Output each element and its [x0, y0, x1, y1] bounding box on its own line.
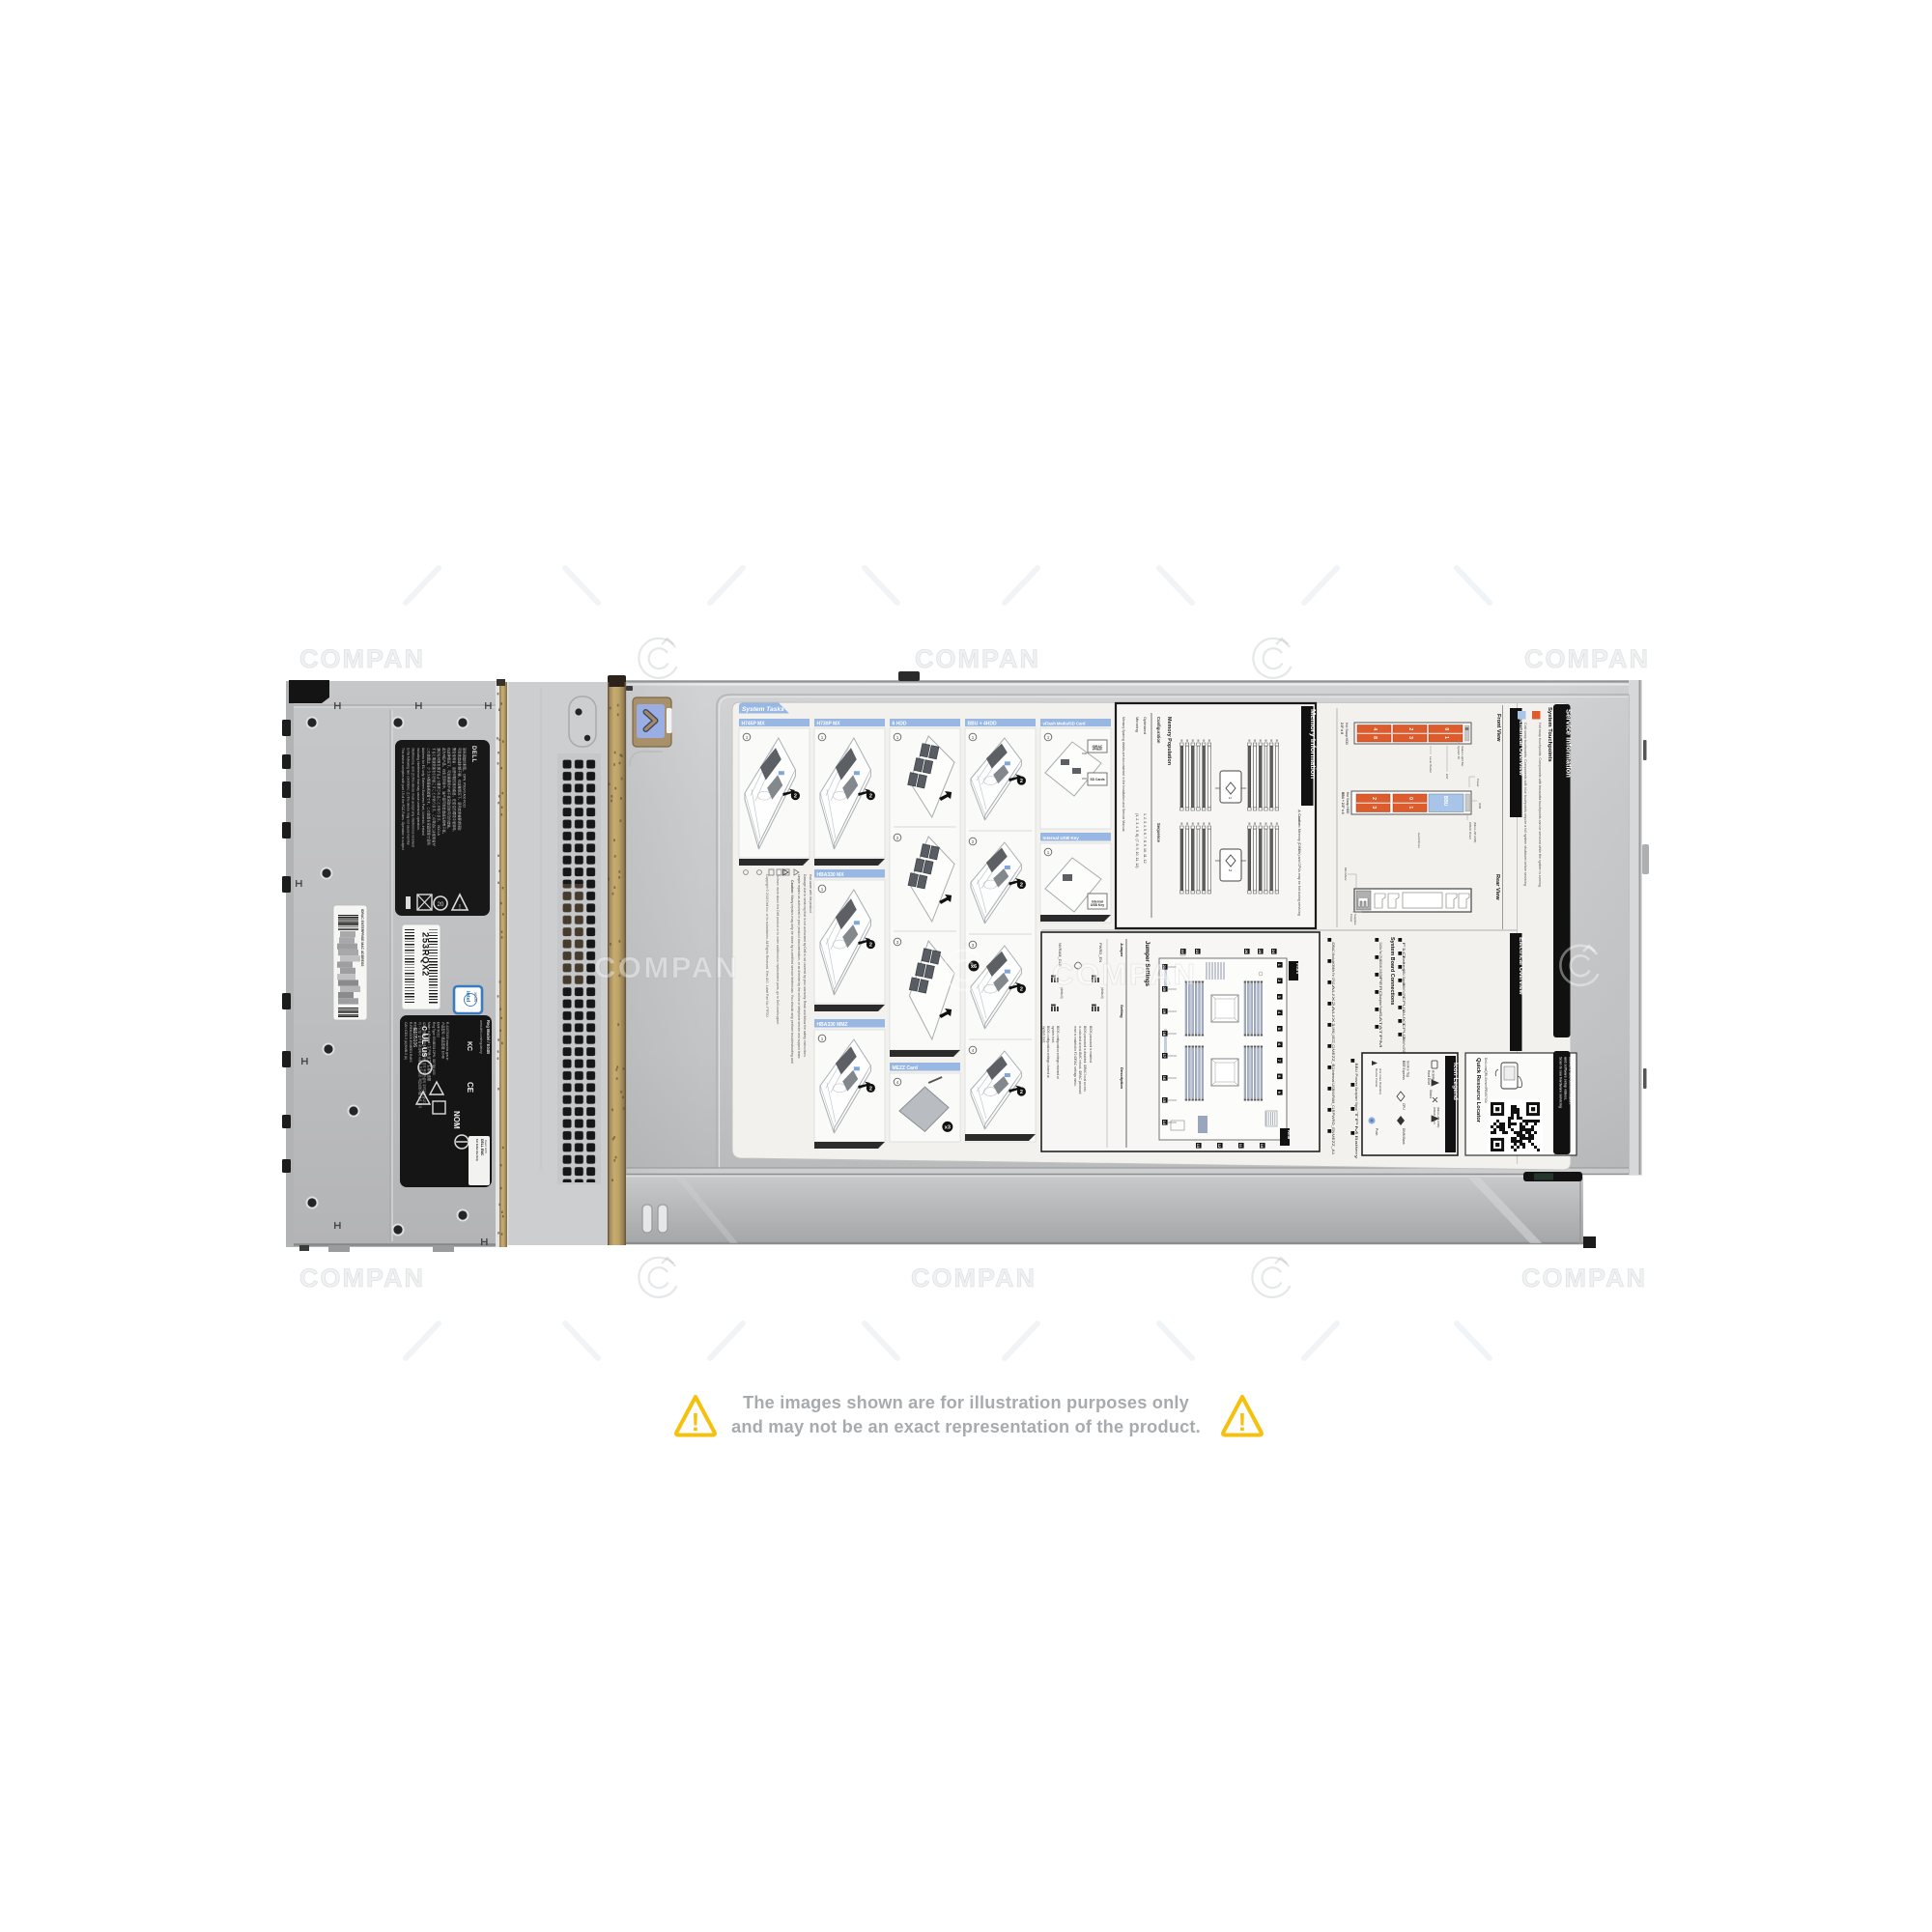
svg-text:在这种情况下，可能需要用户对干扰采取切实可行的措施。: 在这种情况下，可能需要用户对干扰采取切实可行的措施。: [447, 748, 452, 831]
svg-text:Battery: Battery: [1354, 1136, 1358, 1160]
svg-text:1: 1: [1047, 850, 1050, 855]
svg-text:!: !: [459, 904, 461, 911]
svg-text:2: 2: [1020, 779, 1023, 784]
svg-text:2: 2: [1407, 727, 1413, 730]
svg-text:⚠ Caution: Memory (DIMMs) and: ⚠ Caution: Memory (DIMMs) and CPUs may b…: [1297, 810, 1301, 916]
svg-text:Damage due to servicing that i: Damage due to servicing that is not auth…: [803, 874, 807, 1057]
svg-text:CPU: CPU: [1402, 1103, 1406, 1110]
svg-text:BIOS password is disabled. iDR: BIOS password is disabled. iDRAC local a…: [1083, 1026, 1087, 1092]
svg-text:Front: Front: [1295, 963, 1300, 975]
svg-text:DIMM Bank: DIMM Bank: [1402, 1128, 1406, 1145]
svg-text:TPM: TPM: [1354, 1112, 1358, 1136]
svg-text:(Micro-AB USB): (Micro-AB USB): [1436, 1107, 1440, 1127]
svg-text:This device complies with part: This device complies with part 15 of the…: [401, 748, 405, 850]
svg-text:SD Cards: SD Cards: [1090, 778, 1104, 781]
svg-text:Sequence: Sequence: [1156, 823, 1161, 842]
svg-text:interference, and (2) this dev: interference, and (2) this device must a…: [412, 748, 415, 847]
svg-text:reset is enabled in F2 iDRAC s: reset is enabled in F2 iDRAC settings me…: [1073, 1026, 1077, 1087]
svg-text:Backplane Signal: Backplane Signal: [1354, 1088, 1358, 1111]
svg-text:Quick Resource Locator: Quick Resource Locator: [1475, 1058, 1481, 1123]
svg-text:0: 0: [1443, 727, 1449, 730]
svg-text:intel: intel: [465, 991, 470, 1003]
svg-text:2: 2: [1020, 1090, 1023, 1095]
svg-text:Supplies: Supplies: [1353, 914, 1357, 925]
svg-text:COMPAN: COMPAN: [594, 951, 739, 984]
svg-text:(Micro-AB USB): (Micro-AB USB): [1473, 822, 1477, 842]
svg-text:14: 14: [1162, 1121, 1167, 1125]
svg-text:2: 2: [794, 794, 797, 800]
svg-text:3: 3: [1371, 806, 1377, 809]
svg-text:AUX1: AUX1: [1331, 1007, 1335, 1028]
svg-text:1: 1: [821, 887, 824, 892]
svg-text:BIOS configuration settings cl: BIOS configuration settings cleared at: [1046, 1026, 1050, 1078]
svg-text:USB Key: USB Key: [1091, 903, 1104, 907]
svg-text:適切な対策を講ずるよう要求されることがあります。 VCCI-: 適切な対策を講ずるよう要求されることがあります。 VCCI-A: [437, 748, 441, 837]
svg-text:Internal USB: Internal USB: [1331, 1070, 1335, 1092]
svg-text:EMF FCC2: EMF FCC2: [437, 1022, 440, 1037]
svg-text:c UL us: c UL us: [420, 1026, 430, 1057]
svg-text:17: 17: [1162, 1054, 1167, 1059]
svg-text:iDRAC Direct: iDRAC Direct: [1468, 822, 1472, 839]
svg-text:Internal USB Key: Internal USB Key: [1043, 836, 1080, 840]
svg-text:EST: EST: [1445, 774, 1449, 780]
svg-text:Jumper: Jumper: [1120, 943, 1124, 957]
svg-text:!: !: [1238, 1407, 1247, 1436]
svg-text:System ID: System ID: [1457, 746, 1461, 760]
svg-text:可能會造成射頻干擾，在這種情況下，使用者會被要求採取: 可能會造成射頻干擾，在這種情況下，使用者會被要求採取: [457, 748, 462, 831]
svg-text:CE: CE: [466, 1082, 474, 1094]
svg-text:6 HDD: 6 HDD: [893, 721, 907, 726]
svg-text:Address for EU only: Raheen Bu: Address for EU only: Raheen Business Par…: [421, 748, 425, 836]
svg-text:Icon Legend: Icon Legend: [1452, 1063, 1459, 1100]
svg-text:すると電波妨害を引き起こすことがあります。この場合には使用者: すると電波妨害を引き起こすことがあります。この場合には使用者が: [432, 748, 437, 847]
svg-text:iDRAC Module: iDRAC Module: [1331, 943, 1335, 964]
svg-text:8: 8: [1372, 736, 1378, 739]
svg-text:iDRAC Direct: iDRAC Direct: [1433, 1107, 1436, 1124]
svg-text:Dell.com/QRL/Server/PEMX740c: Dell.com/QRL/Server/PEMX740c: [1484, 1058, 1488, 1103]
svg-text:4: 4: [896, 1080, 899, 1085]
svg-text:AUX2: AUX2: [1331, 985, 1335, 1007]
svg-text:2: 2: [972, 839, 975, 844]
svg-text:USB: USB: [1478, 803, 1482, 809]
svg-text:Backplane Power: Backplane Power: [1378, 995, 1382, 1014]
svg-text:MEZZ_B1: MEZZ_B1: [1331, 1049, 1335, 1070]
svg-text:System Board Connections: System Board Connections: [1389, 937, 1395, 1005]
svg-text:Reg Model / E04B: Reg Model / E04B: [486, 1020, 491, 1054]
svg-text:Mechanical Overview: Mechanical Overview: [1518, 712, 1524, 777]
svg-text:3: 3: [896, 940, 899, 945]
svg-text:23: 23: [1195, 950, 1200, 954]
svg-text:COMPAN: COMPAN: [1052, 957, 1197, 991]
svg-text:KC: KC: [466, 1041, 472, 1051]
svg-text:253RQX2: 253RQX2: [420, 932, 431, 977]
svg-text:DELL: DELL: [470, 746, 476, 763]
svg-text:Electrical Overview: Electrical Overview: [1518, 937, 1524, 996]
svg-text:XEON: XEON: [473, 992, 477, 1003]
svg-text:Rear View: Rear View: [1494, 874, 1500, 900]
svg-text:BBU Power: BBU Power: [1354, 1064, 1358, 1088]
svg-text:BBU + 4HDD: BBU + 4HDD: [968, 721, 998, 726]
svg-text:某些適當的對策。 DPN: P5GV3 A00 FCC: 某些適當的對策。 DPN: P5GV3 A00 FCCI: [463, 748, 468, 808]
svg-text:20: 20: [438, 902, 444, 908]
svg-text:1: 1: [972, 735, 975, 740]
svg-text:Service Information: Service Information: [1565, 709, 1574, 778]
svg-text:1: 1: [1407, 806, 1413, 809]
svg-text:Hot swap touchpoints: Componen: Hot swap touchpoints: Components with te…: [1538, 723, 1542, 888]
svg-text:PWRD_EN: PWRD_EN: [1331, 1113, 1335, 1135]
svg-text:1: 1: [821, 1037, 824, 1041]
svg-text:Hot Swap HDD: Hot Swap HDD: [1346, 792, 1350, 814]
svg-text:1: 1: [1047, 735, 1050, 740]
svg-text:2: 2: [1020, 987, 1023, 993]
svg-text:BIOS configuration settings re: BIOS configuration settings retained at: [1056, 1026, 1060, 1079]
svg-text:Scan to see hardware servicing: Scan to see hardware servicing: [1559, 1057, 1563, 1108]
svg-text:and software setup videos,: and software setup videos,: [1564, 1057, 1568, 1100]
svg-text:Mirroring: Mirroring: [1135, 717, 1140, 732]
svg-text:how-to's, and documentation.: how-to's, and documentation.: [1569, 1057, 1573, 1104]
svg-text:Status: Status: [1429, 1090, 1433, 1098]
svg-text:Push: Push: [1375, 1128, 1378, 1135]
svg-text:System Touchpoints: System Touchpoints: [1547, 707, 1552, 762]
svg-text:25: 25: [1258, 950, 1263, 954]
svg-text:警告使用者：這是甲類的資訊產品，在居住的環境中使用時，: 警告使用者：這是甲類的資訊產品，在居住的環境中使用時，: [452, 748, 457, 834]
svg-text:Hard Drive: Hard Drive: [1427, 1070, 1431, 1085]
svg-text:simple repairs as authorized i: simple repairs as authorized in your pro…: [797, 874, 801, 1059]
svg-text:to the following two condition: to the following two conditions: (1) thi…: [406, 748, 410, 845]
svg-text:此为A级产品，在生活环境中，该产品可能会造成无线电干扰。: 此为A级产品，在生活环境中，该产品可能会造成无线电干扰。: [441, 748, 446, 836]
svg-text:is unlocked at next BMC reboot: is unlocked at next BMC reboot. iDRAC pa…: [1078, 1026, 1082, 1094]
svg-text:EST Express: EST Express: [1402, 1061, 1406, 1080]
svg-text:Model: E04B: Model: E04B: [484, 1140, 487, 1153]
svg-text:12: 12: [1217, 1144, 1222, 1149]
svg-text:COMPAN: COMPAN: [1524, 644, 1650, 673]
svg-text:この装置は、クラスA情報技術装置です。この装置を家庭環境で使: この装置は、クラスA情報技術装置です。この装置を家庭環境で使用: [427, 748, 432, 845]
svg-text:1, 2, 3, 4, 5, 6, 7, 8, 9, 10,: 1, 2, 3, 4, 5, 6, 7, 8, 9, 10, 11, 12: [1143, 813, 1147, 864]
svg-text:COMPAN: COMPAN: [299, 644, 425, 673]
svg-text:that came with the product.: that came with the product.: [809, 874, 812, 914]
svg-text:TPM: TPM: [1378, 1030, 1382, 1049]
svg-text:Hard Drives: Hard Drives: [1417, 833, 1421, 848]
svg-text:NVRAM_CLR: NVRAM_CLR: [1331, 1092, 1335, 1114]
svg-text:MEZZ Card: MEZZ Card: [893, 1065, 918, 1071]
svg-text:system boot.: system boot.: [1051, 1026, 1055, 1043]
svg-text:2: 2: [896, 836, 899, 840]
svg-text:0: 0: [1407, 797, 1413, 800]
svg-text:15: 15: [1162, 1098, 1167, 1103]
svg-text:MINI_MEZZ_C1: MINI_MEZZ_C1: [1331, 1028, 1335, 1049]
svg-text:1: 1: [821, 735, 824, 740]
svg-text:R-41078109 www.bis.gov.in: R-41078109 www.bis.gov.in: [445, 1022, 449, 1061]
svg-text:2: 2: [869, 794, 872, 800]
svg-text:BBU + 2.5" x 4: BBU + 2.5" x 4: [1341, 792, 1345, 814]
svg-text:www.dell.com/regulatory: www.dell.com/regulatory: [479, 1020, 483, 1054]
svg-text:2: 2: [869, 1086, 872, 1092]
svg-text:To learn more about this Dell: To learn more about this Dell product or…: [776, 874, 780, 1024]
svg-text:Service Tag: Service Tag: [1406, 1061, 1410, 1077]
svg-text:MEZZ_A1: MEZZ_A1: [1331, 1134, 1335, 1155]
svg-text:13: 13: [1196, 1144, 1201, 1149]
svg-text:Device Pointer: Device Pointer: [1375, 1068, 1378, 1088]
svg-text:Memory Population: Memory Population: [1166, 717, 1172, 765]
svg-text:H730P MX: H730P MX: [817, 721, 841, 726]
svg-text:Activity: Activity: [1432, 1070, 1435, 1081]
svg-text:(For more Direction): (For more Direction): [1378, 1068, 1382, 1094]
svg-text:DIMMs For CPU2: DIMMs For CPU2: [1402, 1037, 1406, 1053]
svg-text:IDRAC ENTERPRISE MAC ADDRESS: IDRAC ENTERPRISE MAC ADDRESS: [360, 909, 364, 967]
svg-text:DIMMs For CPU2: DIMMs For CPU2: [1331, 964, 1335, 985]
svg-text:Power: Power: [1476, 779, 1480, 787]
svg-text:BBU: BBU: [1442, 796, 1448, 807]
svg-text:system boot.: system boot.: [1042, 1026, 1046, 1043]
svg-text:Configuration: Configuration: [1156, 717, 1161, 744]
svg-text:vFlash Media/SD Card: vFlash Media/SD Card: [1043, 721, 1086, 725]
svg-text:Hot Swap HDD: Hot Swap HDD: [1345, 723, 1349, 746]
svg-text:COMPAN: COMPAN: [1521, 1264, 1647, 1293]
svg-text:1: 1: [896, 735, 899, 740]
svg-text:产品型号 / 產品型號: E04B: 产品型号 / 產品型號: E04B: [440, 1022, 445, 1059]
svg-text:DELL EMC: DELL EMC: [480, 1139, 484, 1156]
svg-text:16: 16: [1162, 1076, 1167, 1081]
svg-text:1: 1: [1443, 736, 1449, 739]
svg-text:HBA330 MMZ: HBA330 MMZ: [817, 1022, 848, 1028]
svg-text:Power: Power: [1350, 914, 1353, 923]
svg-text:(1, 2, 3, 4, 5, 6), (7, 8, 9,: (1, 2, 3, 4, 5, 6), (7, 8, 9, 10, 11, 12…: [1135, 813, 1139, 867]
svg-text:19: 19: [1162, 1009, 1167, 1014]
svg-text:BOSS/M.2/VDSOM: BOSS/M.2/VDSOM: [1378, 960, 1382, 979]
svg-text:BIOS password is enabled.: BIOS password is enabled.: [1089, 1026, 1093, 1064]
svg-text:Memory Information: Memory Information: [1309, 709, 1318, 780]
svg-text:10: 10: [1260, 1144, 1264, 1149]
svg-text:Cold swap touchpoints: Compone: Cold swap touchpoints: Components with b…: [1523, 723, 1527, 887]
svg-text:4: 4: [972, 1048, 975, 1053]
svg-text:System Tasks: System Tasks: [742, 706, 784, 713]
svg-text:24: 24: [1271, 950, 1276, 954]
svg-text:x3: x3: [945, 1124, 951, 1130]
svg-text:For India Use Only: For India Use Only: [475, 1139, 479, 1161]
svg-text:DIMMs For CPU3: DIMMs For CPU3: [1378, 943, 1382, 961]
svg-text:Rear: Rear: [1287, 1130, 1292, 1140]
svg-text:COMPAN: COMPAN: [911, 1264, 1037, 1293]
svg-text:!: !: [692, 1407, 700, 1436]
svg-text:COMPAN: COMPAN: [299, 1264, 425, 1293]
svg-text:COMPAN: COMPAN: [915, 644, 1040, 673]
svg-text:Copyright © 2018 Dell Inc. or: Copyright © 2018 Dell Inc. or its subsid…: [765, 874, 769, 1017]
svg-text:3: 3: [972, 943, 975, 948]
svg-text:4: 4: [1372, 727, 1378, 730]
svg-text:3: 3: [1407, 736, 1413, 739]
svg-text:2: 2: [1020, 883, 1023, 889]
svg-text:Memory Sparing details are doc: Memory Sparing details are documented in…: [1122, 717, 1125, 832]
svg-text:NOM: NOM: [452, 1111, 461, 1129]
svg-text:The images shown are for illus: The images shown are for illustration pu…: [743, 1393, 1190, 1412]
svg-text:Front View: Front View: [1495, 714, 1501, 742]
svg-text:vFlash: vFlash: [1093, 748, 1103, 752]
svg-text:including interference that ma: including interference that may cause un…: [416, 748, 420, 831]
svg-text:2: 2: [1371, 797, 1377, 800]
svg-text:2: 2: [869, 943, 872, 949]
svg-text:Mini Mezz: Mini Mezz: [1344, 867, 1348, 881]
svg-text:Description: Description: [1120, 1067, 1124, 1090]
svg-text:CAN ICES-3 (A)/NMB-3 (A): CAN ICES-3 (A)/NMB-3 (A): [404, 1022, 408, 1060]
svg-text:Optimized: Optimized: [1143, 717, 1148, 734]
svg-text:HBA330 MX: HBA330 MX: [817, 872, 845, 878]
svg-text:and may not be an exact repres: and may not be an exact representation o…: [731, 1417, 1201, 1436]
svg-text:Caution: Many repairs may onl: Caution: Many repairs may only be done b…: [790, 880, 794, 1064]
svg-text:1: 1: [746, 735, 749, 740]
svg-text:26: 26: [1244, 950, 1249, 954]
svg-text:2.5" x 6: 2.5" x 6: [1340, 723, 1344, 734]
svg-text:18: 18: [1162, 1032, 1167, 1037]
svg-text:H745P MX: H745P MX: [742, 721, 766, 726]
svg-text:E105106: E105106: [412, 1028, 417, 1047]
svg-text:22: 22: [1180, 950, 1185, 954]
svg-text:Status Light Bar: Status Light Bar: [1461, 746, 1464, 766]
svg-text:Setting: Setting: [1120, 1005, 1124, 1018]
svg-text:Lever Button: Lever Button: [1429, 756, 1433, 773]
